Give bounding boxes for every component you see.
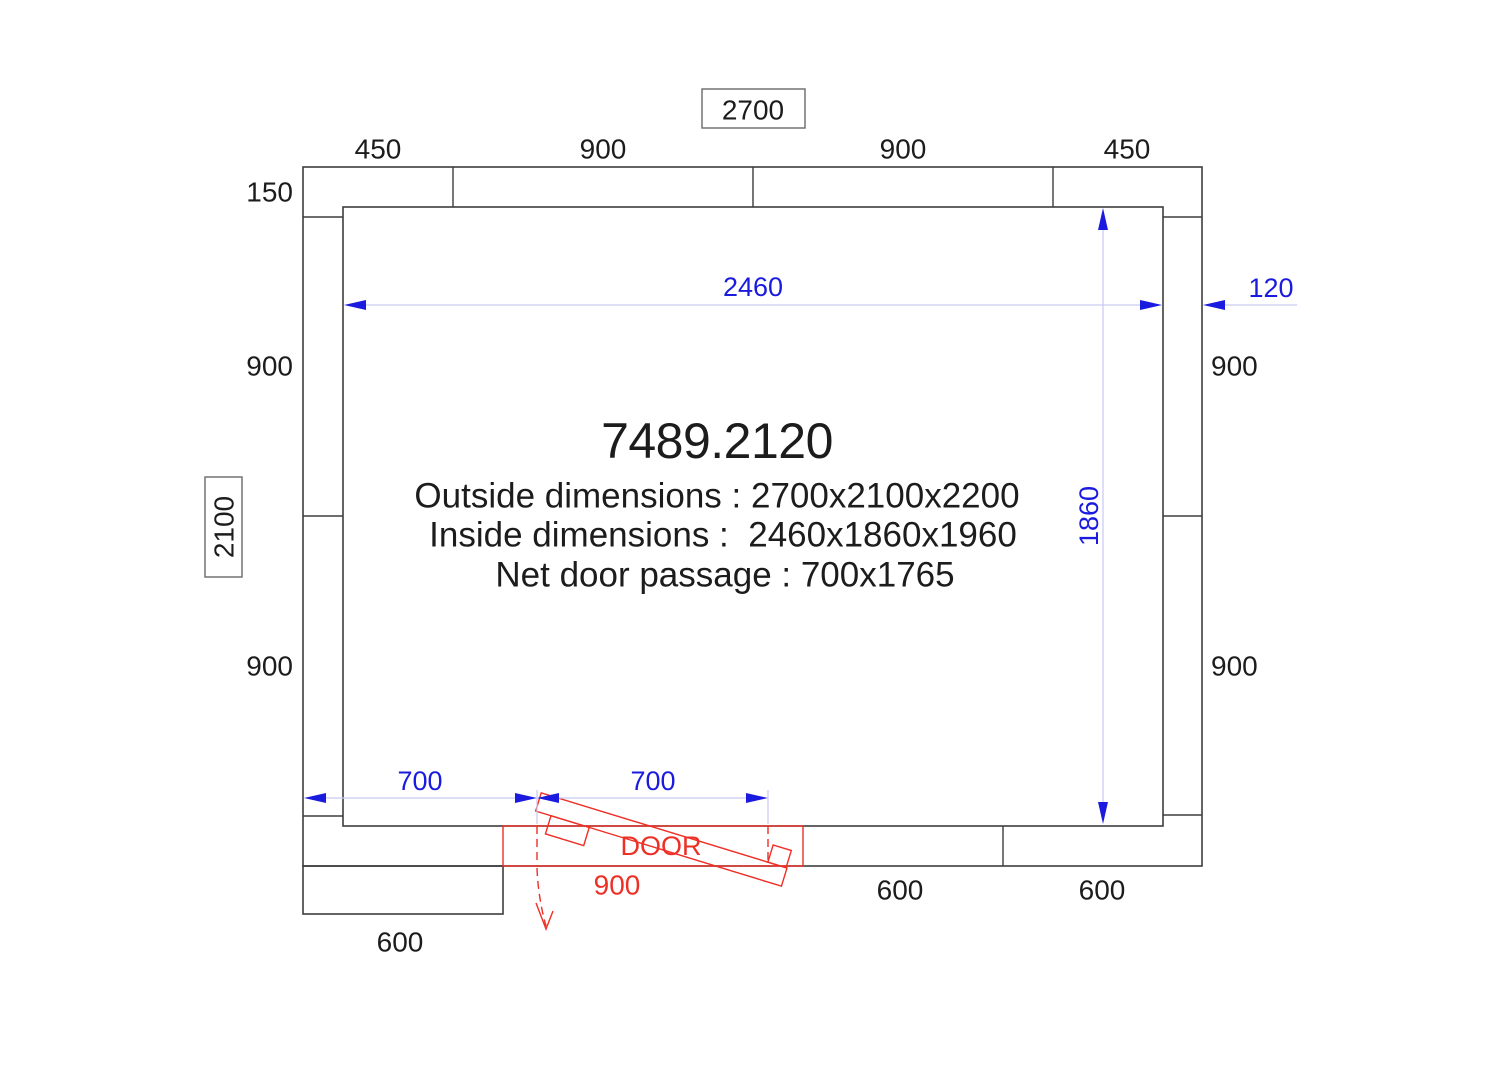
model-number: 7489.2120 xyxy=(601,413,833,469)
top-panel-label-4: 450 xyxy=(1104,134,1151,165)
dim-inner-height-label: 1860 xyxy=(1074,486,1104,546)
door-handle xyxy=(545,816,589,846)
dim-door-offset-arrow-right xyxy=(515,793,537,803)
bottom-extension-label: 600 xyxy=(377,927,424,958)
dim-inner-width-arrow-right xyxy=(1140,300,1162,310)
left-panel-label-1: 150 xyxy=(246,177,293,208)
dim-door-passage-label: 700 xyxy=(630,766,675,796)
drawing-canvas: 2460 120 1860 700 700 2700 2100 450 900 … xyxy=(0,0,1500,1060)
dim-inner-height-arrow-bottom xyxy=(1098,802,1108,824)
dim-door-passage-arrow-right xyxy=(746,793,768,803)
bottom-extension-panel xyxy=(303,866,503,914)
top-panel-label-3: 900 xyxy=(880,134,927,165)
dim-wall-thickness-arrow xyxy=(1203,300,1225,310)
outside-dimensions-text: Outside dimensions : 2700x2100x2200 xyxy=(414,477,1019,516)
overall-height-label: 2100 xyxy=(209,496,240,558)
dim-inner-height-arrow-top xyxy=(1098,208,1108,230)
inside-dimensions-text: Inside dimensions : 2460x1860x1960 xyxy=(429,516,1017,555)
right-panel-label-1: 900 xyxy=(1211,351,1258,382)
right-panel-label-2: 900 xyxy=(1211,651,1258,682)
overall-width-label: 2700 xyxy=(722,95,784,126)
door-label: DOOR xyxy=(621,831,702,861)
dim-wall-thickness-label: 120 xyxy=(1248,273,1293,303)
dim-door-offset-arrow-left xyxy=(304,793,326,803)
left-panel-label-3: 900 xyxy=(246,651,293,682)
left-panel-label-2: 900 xyxy=(246,351,293,382)
right-wall-panel-joints xyxy=(1163,217,1202,815)
bottom-panel-label-1: 600 xyxy=(877,875,924,906)
top-wall-panel-joints xyxy=(453,167,1053,207)
door-panel-width-label: 900 xyxy=(594,870,641,901)
door-hinge-cap xyxy=(768,845,791,868)
top-panel-label-2: 900 xyxy=(580,134,627,165)
dim-inner-width-label: 2460 xyxy=(723,272,783,302)
dim-door-offset-label: 700 xyxy=(397,766,442,796)
left-wall-panel-joints xyxy=(303,217,343,816)
net-door-passage-text: Net door passage : 700x1765 xyxy=(495,556,954,595)
bottom-panel-label-2: 600 xyxy=(1079,875,1126,906)
cold-room-drawing: 2460 120 1860 700 700 2700 2100 450 900 … xyxy=(0,0,1500,1060)
top-panel-label-1: 450 xyxy=(355,134,402,165)
dim-inner-width-arrow-left xyxy=(344,300,366,310)
door-swing-arrowhead xyxy=(536,903,553,929)
